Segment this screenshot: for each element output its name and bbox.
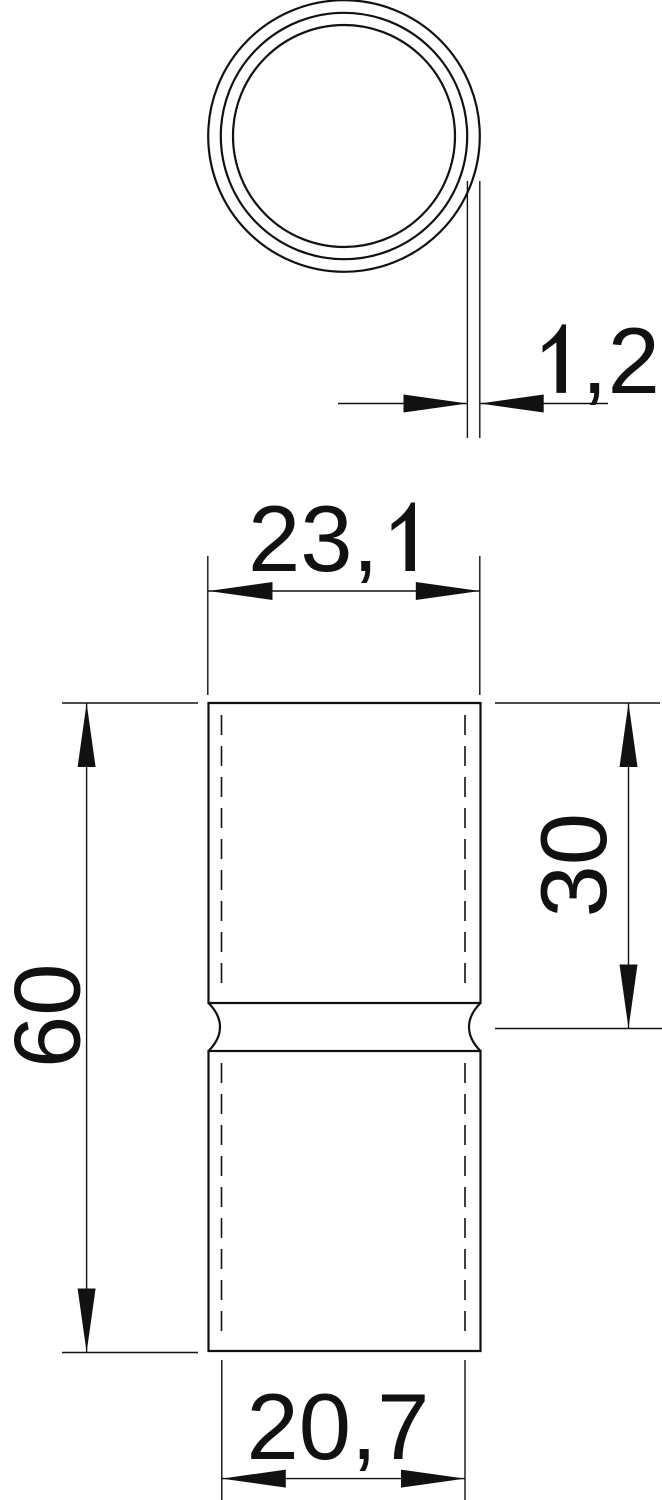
svg-text:23,: 23, xyxy=(248,486,379,591)
svg-text:,2: ,2 xyxy=(582,308,660,413)
svg-text:30: 30 xyxy=(521,813,626,918)
svg-text:20,7: 20,7 xyxy=(247,1374,430,1479)
svg-text:60: 60 xyxy=(0,963,100,1068)
